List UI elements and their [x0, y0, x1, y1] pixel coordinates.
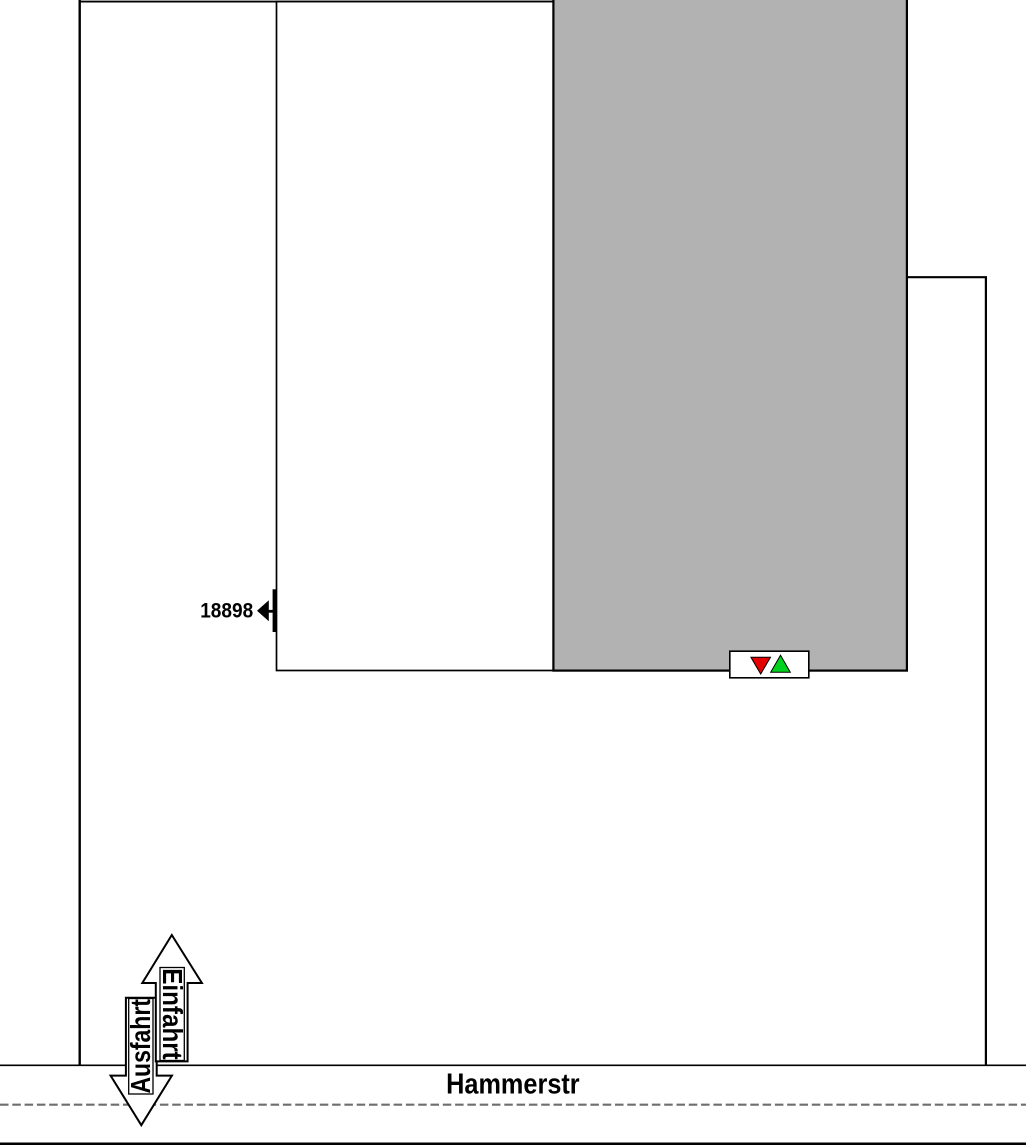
svg-text:Einfahrt: Einfahrt [157, 968, 188, 1060]
svg-text:Hammerstr: Hammerstr [446, 1069, 580, 1101]
svg-text:18898: 18898 [200, 599, 253, 623]
svg-text:Ausfahrt: Ausfahrt [125, 999, 156, 1094]
